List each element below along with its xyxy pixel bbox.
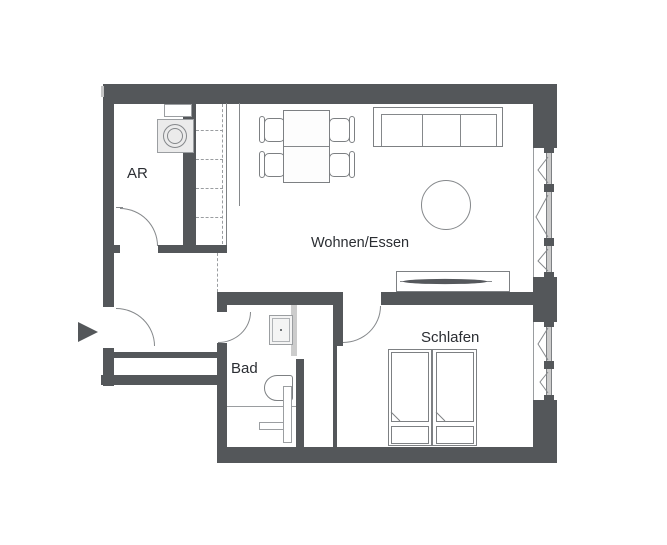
sink-drain-dot [280,329,282,331]
window-mullion [544,238,554,246]
wall-bad-west [217,343,227,447]
wall-bad-jamb [217,292,227,312]
window-mullion [544,148,554,153]
chair-seat [264,153,285,177]
room-label-wohnen-essen: Wohnen/Essen [311,235,409,251]
sofa-armrest-left [381,114,382,146]
window-mullion [544,395,554,400]
wall-ar-south-right [158,245,227,253]
wall-schlafen-pier [333,305,343,346]
entry-arrow-icon [78,322,98,342]
window-glazing-living [546,148,552,277]
passage-dashed-line [217,253,218,292]
wall-schlafen-west-thin [333,346,337,447]
sofa [373,107,503,147]
kitchen-cabinet-edge-dashed [222,104,223,244]
washing-machine-drum-inner [167,128,183,144]
wall-bottom-left [101,375,227,385]
sofa-cushion-divider [422,114,423,146]
window-inner-face-line [533,322,534,400]
wall-middle-right [381,292,533,305]
wall-bad-east [296,359,304,447]
sofa-cushion-divider [460,114,461,146]
ar-door-arc [120,208,158,246]
entry-door-arc [116,308,155,346]
rug-circle [421,180,471,230]
kitchen-cabinet-line [196,217,223,218]
bed-mattress-left [391,352,429,422]
kitchen-cabinet-line [196,188,223,189]
sofa-back-line [381,114,497,115]
kitchen-side-line [239,103,240,206]
chair-seat [329,153,350,177]
ar-door-leaf [116,207,123,208]
wall-middle-left [217,292,343,305]
chair-seat [264,118,285,142]
window-mullion [544,184,554,192]
window-mullion [544,361,554,369]
wall-notch [101,86,104,97]
wall-bottom [217,447,557,463]
room-label-schlafen: Schlafen [421,329,479,346]
room-label-bad: Bad [231,360,258,377]
room-label-ar: AR [127,165,148,182]
window-mullion [544,322,554,327]
bed-pillow-right [436,426,474,444]
shower-bar-vertical [283,386,292,443]
wall-right-bottom [533,400,557,447]
window-mullion [544,272,554,277]
bad-door-arc [218,312,251,343]
schlafen-door-arc [343,306,381,343]
window-inner-face-line [533,148,534,277]
floorplan-canvas: AR Wohnen/Essen Bad Schlafen [0,0,667,545]
tv-sideboard [396,271,510,292]
bed-mattress-right [436,352,474,422]
wall-right-top [533,84,557,148]
sofa-armrest-right [496,114,497,146]
wall-top [103,84,557,104]
kitchen-cabinet-line [196,159,223,160]
chair-seat [329,118,350,142]
shower-bar-horizontal [259,422,285,430]
detail-overlay [0,0,667,545]
wall-left-upper [103,104,114,307]
ar-shelf [164,104,192,117]
wall-hall-south [114,352,219,358]
kitchen-cabinet-line [196,130,223,131]
wall-ar-south-left [103,245,120,253]
dining-table-divider [284,146,329,147]
bed-pillow-left [391,426,429,444]
wall-right-middle [533,277,557,322]
